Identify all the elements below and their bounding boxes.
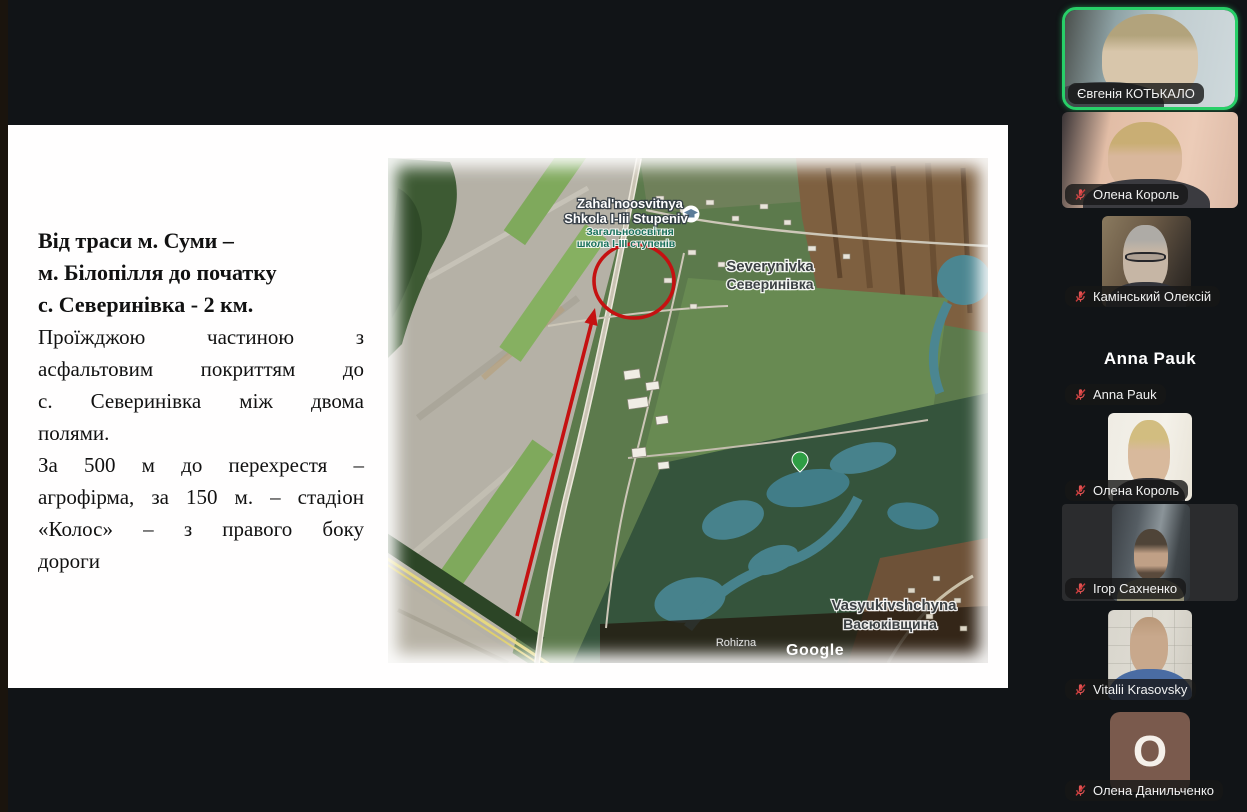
- avatar-letter: О: [1133, 727, 1167, 777]
- participant-name-label: Vitalii Krasovsky: [1093, 682, 1187, 697]
- slide-heading-line: Від траси м. Суми –: [38, 225, 364, 257]
- participant-tile-vitalii-krasovsky[interactable]: Vitalii Krasovsky: [1062, 610, 1238, 700]
- muted-mic-icon: [1074, 784, 1087, 797]
- slide-body-line: «Колос» – з правого боку: [38, 513, 364, 545]
- slide-text-block: Від траси м. Суми – м. Білопілля до поча…: [38, 225, 364, 577]
- slide-body-line: За 500 м до перехрестя –: [38, 449, 364, 481]
- participant-name-label: Ігор Сахненко: [1093, 581, 1177, 596]
- map-label-school-latin-1: Zahal'noosvitnya: [577, 196, 683, 211]
- participant-tile-kaminskyi-oleksii[interactable]: Камінський Олексій: [1062, 216, 1238, 307]
- participant-face: [1128, 420, 1170, 487]
- map-label-town-latin: Severynivka: [726, 258, 814, 275]
- muted-mic-icon: [1074, 188, 1087, 201]
- slide-body-line: агрофірма, за 150 м. – стадіон: [38, 481, 364, 513]
- slide-body-line: с. Северинівка між двома: [38, 385, 364, 417]
- participant-tile-yevheniia-kotkalo[interactable]: Євгенія КОТЬКАЛО: [1062, 7, 1238, 110]
- participant-tile-olena-danylchenko[interactable]: О Олена Данильченко: [1062, 708, 1238, 801]
- glasses: [1125, 252, 1166, 262]
- slide-body-line: полями.: [38, 417, 364, 449]
- slide-body-line: дороги: [38, 545, 364, 577]
- participant-name-label: Олена Король: [1093, 187, 1179, 202]
- map-label-hamlet: Rohizna: [716, 637, 757, 649]
- participant-name-tag: Ігор Сахненко: [1065, 578, 1186, 599]
- map-label-town-cyr: Северинівка: [726, 276, 813, 292]
- satellite-map-svg: Zahal'noosvitnya Shkola I-Iii Stupeniv З…: [388, 158, 988, 663]
- muted-mic-icon: [1074, 388, 1087, 401]
- muted-mic-icon: [1074, 290, 1087, 303]
- participant-tile-ihor-sakhnenko[interactable]: Ігор Сахненко: [1062, 504, 1238, 601]
- map-label-school-cyr-1: Загальноосвітня: [586, 226, 674, 238]
- participant-face: [1134, 529, 1168, 579]
- shared-screen-slide: Від траси м. Суми – м. Білопілля до поча…: [8, 125, 1008, 688]
- slide-body-line: асфальтовим покриттям до: [38, 353, 364, 385]
- map-label-village-cyr: Васюківщина: [843, 616, 937, 632]
- participant-tile-olena-korol-2[interactable]: Олена Король: [1062, 413, 1238, 501]
- google-watermark: Google: [786, 642, 844, 659]
- map-label-school-latin-2: Shkola I-Iii Stupeniv: [564, 211, 688, 226]
- muted-mic-icon: [1074, 484, 1087, 497]
- participant-name-tag: Vitalii Krasovsky: [1065, 679, 1196, 700]
- muted-mic-icon: [1074, 582, 1087, 595]
- participant-name-label: Камінський Олексій: [1093, 289, 1211, 304]
- participant-name-tag: Anna Pauk: [1065, 384, 1166, 405]
- meeting-window: Від траси м. Суми – м. Білопілля до поча…: [0, 0, 1247, 812]
- participant-tile-anna-pauk[interactable]: Anna Pauk Anna Pauk: [1062, 311, 1238, 405]
- participant-name-tag: Олена Король: [1065, 480, 1188, 501]
- participant-name-label: Євгенія КОТЬКАЛО: [1077, 86, 1195, 101]
- participant-face: [1130, 617, 1169, 675]
- slide-heading-line: м. Білопілля до початку: [38, 257, 364, 289]
- participant-name-label: Anna Pauk: [1093, 387, 1157, 402]
- participant-name-label: Олена Король: [1093, 483, 1179, 498]
- participants-panel: Євгенія КОТЬКАЛО Олена Король Кам: [1062, 0, 1238, 812]
- slide-body-line: Проїжджою частиною з: [38, 321, 364, 353]
- participant-display-name: Anna Pauk: [1062, 349, 1238, 369]
- map-label-village-latin: Vasyukivshchyna: [831, 597, 957, 614]
- participant-tile-olena-korol-1[interactable]: Олена Король: [1062, 112, 1238, 208]
- participant-name-tag: Олена Король: [1065, 184, 1188, 205]
- satellite-map-image: Zahal'noosvitnya Shkola I-Iii Stupeniv З…: [388, 158, 988, 663]
- muted-mic-icon: [1074, 683, 1087, 696]
- participant-name-tag: Олена Данильченко: [1065, 780, 1223, 801]
- map-label-school-cyr-2: школа І-ІІІ ступенів: [577, 238, 676, 250]
- slide-heading-line: с. Северинівка - 2 км.: [38, 289, 364, 321]
- participant-name-tag: Камінський Олексій: [1065, 286, 1220, 307]
- participant-name-label: Олена Данильченко: [1093, 783, 1214, 798]
- left-edge-strip: [0, 0, 8, 812]
- participant-name-tag: Євгенія КОТЬКАЛО: [1068, 83, 1204, 104]
